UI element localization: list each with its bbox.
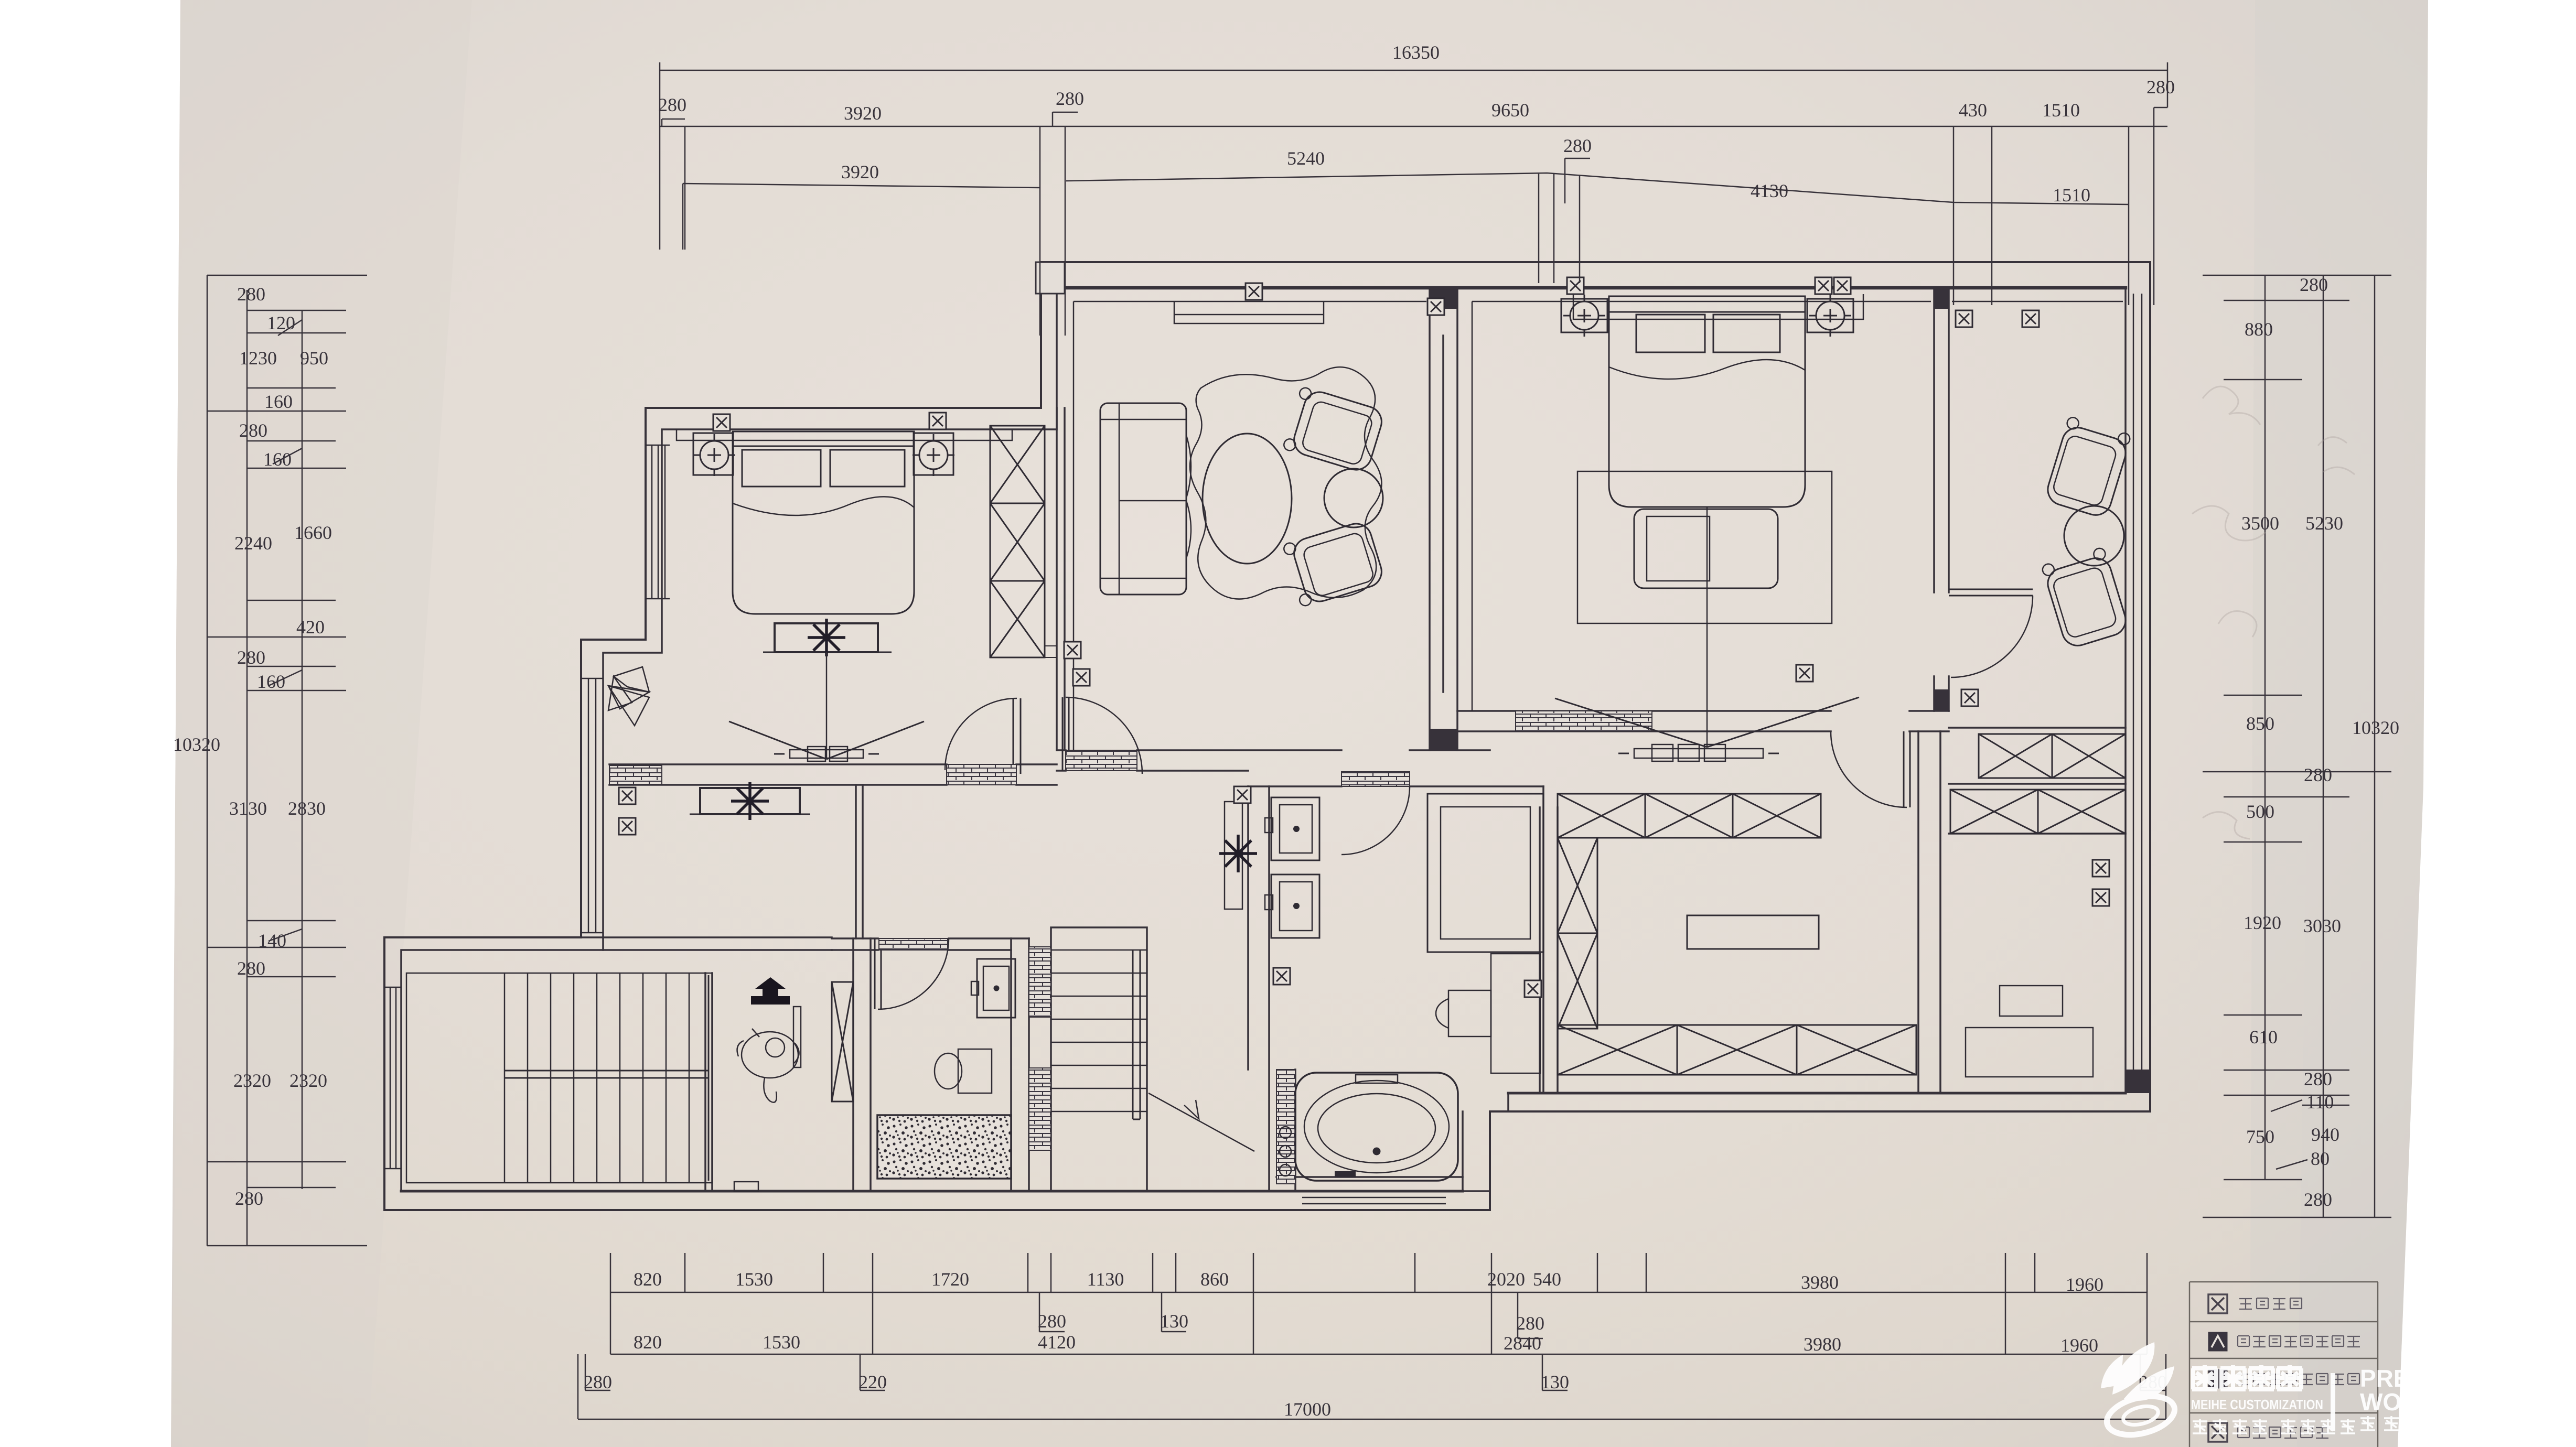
svg-text:940: 940	[2311, 1124, 2339, 1145]
svg-text:1920: 1920	[2244, 912, 2281, 933]
svg-text:160: 160	[257, 671, 285, 692]
svg-text:220: 220	[858, 1372, 887, 1392]
svg-text:2320: 2320	[233, 1070, 271, 1091]
svg-text:4120: 4120	[1038, 1332, 1076, 1353]
svg-text:16350: 16350	[1392, 42, 1440, 63]
svg-text:280: 280	[2304, 764, 2332, 785]
svg-text:5230: 5230	[2305, 513, 2343, 534]
svg-text:820: 820	[634, 1269, 662, 1290]
svg-text:280: 280	[1038, 1311, 1066, 1332]
svg-text:280: 280	[1056, 88, 1084, 109]
svg-text:280: 280	[2304, 1068, 2332, 1089]
svg-text:2840: 2840	[1504, 1333, 1541, 1354]
svg-text:3920: 3920	[841, 161, 879, 182]
svg-text:280: 280	[584, 1372, 612, 1392]
svg-text:3980: 3980	[1801, 1272, 1839, 1293]
svg-text:110: 110	[2306, 1092, 2334, 1113]
svg-text:2320: 2320	[289, 1070, 327, 1091]
svg-text:610: 610	[2249, 1027, 2278, 1048]
svg-text:280: 280	[1516, 1313, 1544, 1334]
svg-text:280: 280	[237, 958, 265, 979]
svg-text:280: 280	[658, 94, 686, 115]
svg-text:80: 80	[2311, 1148, 2330, 1169]
svg-text:850: 850	[2246, 713, 2274, 734]
svg-text:1960: 1960	[2060, 1335, 2098, 1356]
svg-text:130: 130	[1160, 1311, 1188, 1332]
svg-text:280: 280	[2300, 274, 2328, 295]
svg-text:280: 280	[239, 420, 267, 441]
svg-text:1510: 1510	[2042, 100, 2080, 121]
svg-text:280: 280	[237, 647, 265, 668]
svg-text:3030: 3030	[2303, 915, 2341, 936]
svg-text:3500: 3500	[2241, 513, 2279, 534]
svg-text:130: 130	[1541, 1372, 1569, 1392]
svg-text:280: 280	[237, 284, 265, 305]
svg-text:120: 120	[267, 312, 295, 333]
svg-text:17000: 17000	[1284, 1399, 1331, 1420]
svg-text:160: 160	[264, 391, 293, 412]
svg-text:3980: 3980	[1804, 1334, 1841, 1355]
svg-text:1660: 1660	[294, 522, 332, 543]
svg-text:500: 500	[2246, 801, 2274, 822]
svg-text:950: 950	[300, 348, 328, 369]
svg-text:MEIHE CUSTOMIZATION: MEIHE CUSTOMIZATION	[2191, 1397, 2323, 1412]
svg-text:1230: 1230	[239, 348, 277, 369]
svg-text:1720: 1720	[931, 1269, 969, 1290]
svg-text:280: 280	[1563, 135, 1592, 156]
svg-text:2240: 2240	[234, 533, 272, 554]
svg-text:1530: 1530	[763, 1332, 800, 1353]
svg-text:3920: 3920	[844, 103, 882, 124]
svg-text:WO: WO	[2360, 1388, 2401, 1416]
svg-text:880: 880	[2245, 319, 2273, 340]
svg-text:2830: 2830	[288, 798, 326, 819]
svg-text:420: 420	[296, 617, 325, 638]
svg-text:1510: 1510	[2053, 185, 2090, 206]
svg-text:3130: 3130	[229, 798, 267, 819]
svg-text:4130: 4130	[1751, 180, 1788, 201]
svg-text:140: 140	[258, 930, 286, 951]
svg-text:280: 280	[2304, 1189, 2332, 1210]
svg-text:750: 750	[2246, 1126, 2274, 1147]
svg-text:540: 540	[1533, 1269, 1561, 1290]
svg-text:430: 430	[1959, 100, 1987, 121]
svg-text:280: 280	[2146, 77, 2175, 98]
svg-text:1130: 1130	[1087, 1269, 1124, 1290]
svg-text:280: 280	[235, 1188, 263, 1209]
svg-text:9650: 9650	[1491, 100, 1529, 121]
svg-text:860: 860	[1200, 1269, 1229, 1290]
svg-text:10320: 10320	[173, 734, 220, 755]
svg-text:820: 820	[634, 1332, 662, 1353]
svg-text:10320: 10320	[2352, 717, 2399, 738]
svg-text:1530: 1530	[735, 1269, 773, 1290]
svg-text:2020: 2020	[1487, 1269, 1525, 1290]
svg-text:160: 160	[263, 449, 292, 470]
svg-text:5240: 5240	[1287, 148, 1325, 169]
svg-text:1960: 1960	[2066, 1274, 2103, 1295]
